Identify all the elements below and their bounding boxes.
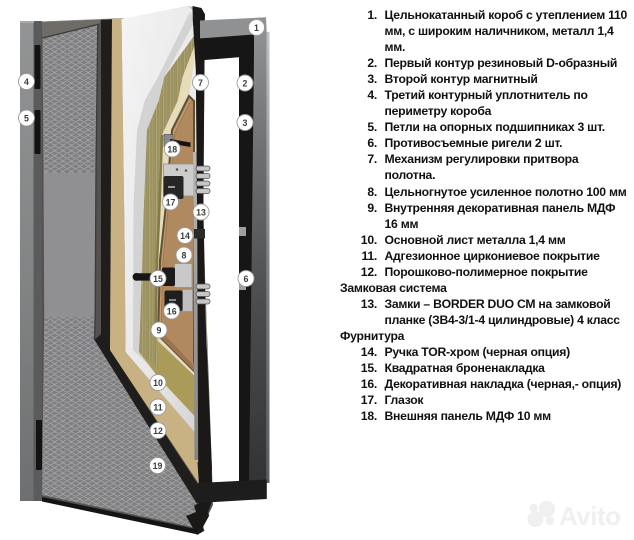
svg-text:3: 3 xyxy=(243,118,248,128)
svg-text:5: 5 xyxy=(24,113,29,123)
svg-text:6: 6 xyxy=(244,274,249,284)
svg-text:19: 19 xyxy=(153,461,163,471)
svg-text:11: 11 xyxy=(153,402,162,412)
svg-text:Avito: Avito xyxy=(559,501,621,531)
svg-text:13: 13 xyxy=(196,207,206,217)
svg-text:7: 7 xyxy=(198,78,203,88)
svg-text:18: 18 xyxy=(167,144,177,154)
svg-text:2: 2 xyxy=(243,78,248,88)
svg-text:12: 12 xyxy=(153,426,163,436)
svg-text:17: 17 xyxy=(166,197,176,207)
svg-text:9: 9 xyxy=(157,325,162,335)
svg-text:10: 10 xyxy=(153,378,163,388)
svg-text:8: 8 xyxy=(182,250,187,260)
svg-text:14: 14 xyxy=(180,231,190,241)
svg-text:15: 15 xyxy=(153,274,163,284)
svg-text:4: 4 xyxy=(24,77,29,87)
svg-text:16: 16 xyxy=(167,306,177,316)
svg-text:1: 1 xyxy=(254,23,259,33)
